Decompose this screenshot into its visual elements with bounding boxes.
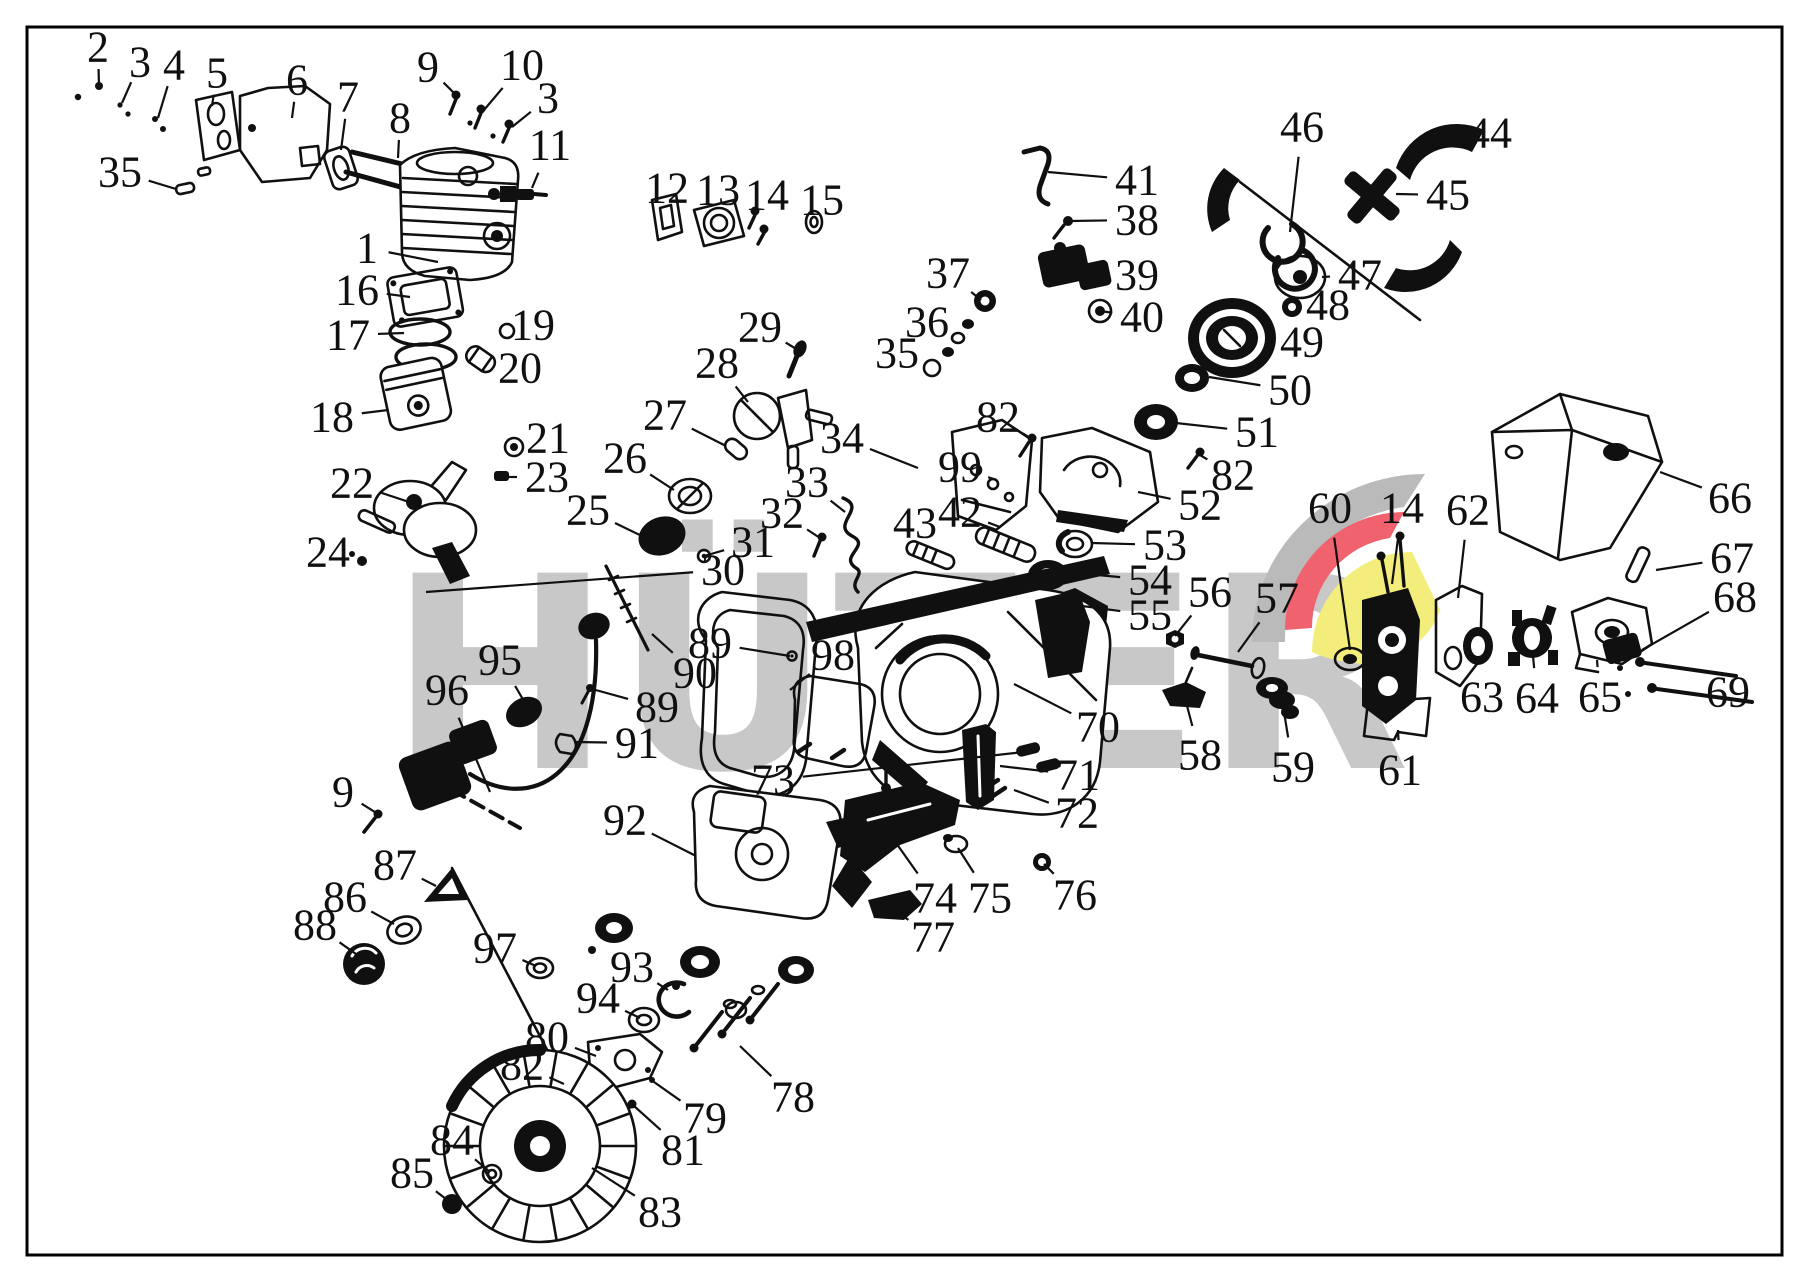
callout-number-62: 62: [1446, 486, 1490, 535]
needle-bearing-part: [505, 438, 523, 456]
exploded-diagram-canvas: HÜTER: [0, 0, 1809, 1283]
callout-87: 87: [373, 841, 436, 890]
callout-15: 15: [800, 176, 844, 225]
callout-number-92: 92: [603, 796, 647, 845]
callout-6: 6: [286, 56, 308, 119]
callout-35: 35: [98, 148, 176, 197]
callout-number-35: 35: [875, 329, 919, 378]
callout-number-14: 14: [1380, 484, 1424, 533]
callout-number-78: 78: [771, 1073, 815, 1122]
dowel-pin-part: [722, 436, 749, 462]
callout-12: 12: [645, 164, 689, 213]
callout-number-25: 25: [566, 486, 610, 535]
callout-23: 23: [505, 453, 569, 502]
callout-number-9: 9: [332, 768, 354, 817]
callout-38: 38: [1070, 196, 1159, 245]
callout-51: 51: [1176, 408, 1279, 457]
callout-number-45: 45: [1426, 171, 1470, 220]
muffler-plate-part: [196, 92, 240, 160]
callout-76: 76: [1044, 864, 1097, 920]
callout-11: 11: [529, 121, 571, 189]
callout-number-20: 20: [498, 344, 542, 393]
callout-number-69: 69: [1706, 668, 1750, 717]
callout-number-82: 82: [976, 393, 1020, 442]
callout-number-11: 11: [529, 121, 571, 170]
callout-number-19: 19: [511, 301, 555, 350]
callout-number-73: 73: [751, 756, 795, 805]
callout-16: 16: [335, 266, 410, 315]
callout-75: 75: [958, 848, 1012, 923]
callout-number-30: 30: [701, 546, 745, 595]
callout-9: 9: [417, 43, 456, 96]
small-fastener-dots: [75, 82, 256, 132]
callout-number-96: 96: [425, 666, 469, 715]
callout-number-26: 26: [603, 434, 647, 483]
cover-screw-set-part: [690, 984, 779, 1053]
choke-valve-part: [734, 390, 833, 468]
screw-29-part: [789, 338, 809, 376]
callout-number-88: 88: [293, 901, 337, 950]
parts-artwork: [75, 82, 1752, 1242]
callout-number-85: 85: [390, 1149, 434, 1198]
chain-brake-cover-part: [1040, 428, 1158, 532]
callout-number-70: 70: [1076, 703, 1120, 752]
muffler-cover-part: [240, 86, 330, 182]
callout-62: 62: [1446, 486, 1490, 599]
callout-number-72: 72: [1055, 789, 1099, 838]
callout-number-22: 22: [330, 459, 374, 508]
callout-14: 14: [745, 171, 789, 220]
callout-number-13: 13: [696, 166, 740, 215]
callout-63: 63: [1460, 673, 1504, 722]
chain-guide-part: [962, 724, 996, 810]
callout-number-46: 46: [1280, 103, 1324, 152]
callout-13: 13: [696, 166, 740, 215]
callout-24: 24: [306, 528, 350, 577]
callout-number-64: 64: [1515, 674, 1559, 723]
callout-number-18: 18: [310, 393, 354, 442]
callout-number-57: 57: [1255, 574, 1299, 623]
worm-gear-part: [1463, 627, 1493, 665]
oil-seal-part: [669, 479, 711, 513]
switch-grommet-part: [384, 912, 425, 948]
callout-number-7: 7: [337, 73, 359, 122]
callout-number-87: 87: [373, 841, 417, 890]
fuel-pipe-part: [1625, 546, 1651, 584]
callout-number-24: 24: [306, 528, 350, 577]
callout-10: 10: [484, 41, 544, 111]
callout-number-84: 84: [430, 1116, 474, 1165]
callout-9: 9: [332, 768, 378, 817]
callout-19: 19: [511, 301, 555, 350]
callout-number-2: 2: [87, 23, 109, 72]
callout-18: 18: [310, 393, 388, 442]
callout-3: 3: [122, 38, 151, 104]
callout-number-35: 35: [98, 148, 142, 197]
callout-number-66: 66: [1708, 474, 1752, 523]
callout-46: 46: [1280, 103, 1324, 233]
head-screws-part: [450, 91, 514, 143]
callout-number-97: 97: [473, 924, 517, 973]
callout-number-3: 3: [537, 74, 559, 123]
callout-78: 78: [740, 1046, 815, 1122]
callout-number-95: 95: [478, 636, 522, 685]
callout-7: 7: [337, 73, 359, 151]
callout-5: 5: [206, 49, 228, 107]
callout-number-83: 83: [638, 1188, 682, 1237]
callout-8: 8: [389, 94, 411, 159]
callout-number-23: 23: [525, 453, 569, 502]
callout-number-99: 99: [938, 443, 982, 492]
callout-2: 2: [87, 23, 109, 87]
callout-29: 29: [738, 303, 798, 352]
callout-number-15: 15: [800, 176, 844, 225]
callout-number-4: 4: [163, 41, 185, 90]
callout-66: 66: [1660, 472, 1752, 523]
callout-45: 45: [1396, 171, 1470, 220]
callout-number-3: 3: [129, 38, 151, 87]
callout-number-34: 34: [820, 414, 864, 463]
callout-number-59: 59: [1271, 743, 1315, 792]
callout-number-60: 60: [1308, 484, 1352, 533]
callout-27: 27: [643, 391, 726, 447]
callout-34: 34: [820, 414, 918, 469]
callout-number-56: 56: [1188, 568, 1232, 617]
callout-37: 37: [926, 249, 981, 301]
callout-number-81: 81: [661, 1126, 705, 1175]
callout-number-44: 44: [1468, 109, 1512, 158]
callout-number-49: 49: [1280, 318, 1324, 367]
callout-35: 35: [875, 329, 919, 378]
parts-diagram-page: HÜTER: [0, 0, 1809, 1283]
callout-number-91: 91: [615, 719, 659, 768]
callout-number-55: 55: [1128, 591, 1172, 640]
callout-number-82: 82: [500, 1041, 544, 1090]
fuel-tank-part: [1492, 394, 1662, 560]
callout-20: 20: [498, 344, 542, 393]
callout-number-38: 38: [1115, 196, 1159, 245]
callout-49: 49: [1280, 318, 1324, 367]
callout-number-63: 63: [1460, 673, 1504, 722]
callout-26: 26: [603, 434, 674, 491]
callout-number-40: 40: [1120, 293, 1164, 342]
callout-number-58: 58: [1178, 731, 1222, 780]
callout-number-76: 76: [1053, 871, 1097, 920]
callout-number-12: 12: [645, 164, 689, 213]
piston-part: [379, 356, 453, 431]
callout-69: 69: [1706, 668, 1750, 717]
callout-77: 77: [900, 913, 955, 962]
callout-number-61: 61: [1378, 746, 1422, 795]
callout-number-17: 17: [326, 311, 370, 360]
callout-68: 68: [1642, 573, 1757, 651]
callout-number-75: 75: [968, 874, 1012, 923]
callout-number-16: 16: [335, 266, 379, 315]
callout-number-94: 94: [576, 974, 620, 1023]
callout-number-8: 8: [389, 94, 411, 143]
callout-number-37: 37: [926, 249, 970, 298]
callout-number-98: 98: [811, 631, 855, 680]
wrist-pin-part: [463, 343, 498, 375]
callout-number-65: 65: [1578, 673, 1622, 722]
cylinder-part: [400, 148, 518, 280]
callout-number-68: 68: [1713, 573, 1757, 622]
callout-number-14: 14: [745, 171, 789, 220]
callout-number-77: 77: [911, 913, 955, 962]
callout-43: 43: [893, 499, 937, 548]
callout-number-9: 9: [417, 43, 439, 92]
callout-number-51: 51: [1235, 408, 1279, 457]
callout-number-6: 6: [286, 56, 308, 105]
callout-number-42: 42: [938, 488, 982, 537]
callout-number-43: 43: [893, 499, 937, 548]
callout-64: 64: [1515, 656, 1559, 723]
callout-number-27: 27: [643, 391, 687, 440]
callout-4: 4: [158, 41, 185, 119]
callout-number-5: 5: [206, 49, 228, 98]
muffler-bolt-part: [175, 167, 210, 195]
callout-number-28: 28: [695, 339, 739, 388]
callout-number-29: 29: [738, 303, 782, 352]
callout-number-90: 90: [673, 649, 717, 698]
